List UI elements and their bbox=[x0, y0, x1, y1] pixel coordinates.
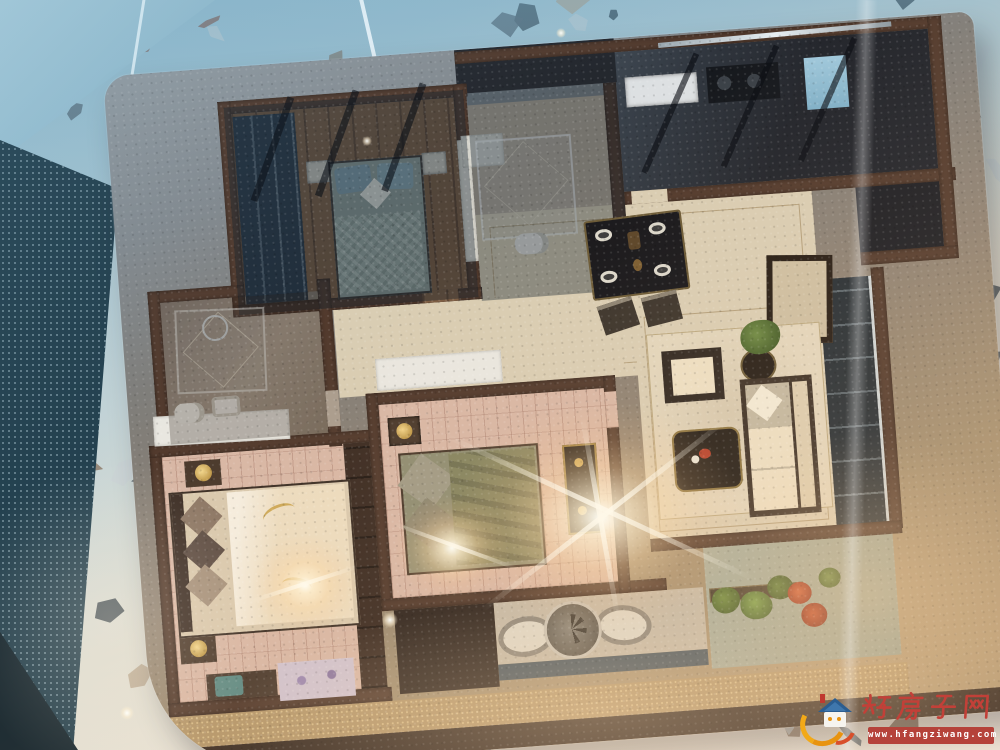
palm-shadow bbox=[556, 613, 588, 645]
armchair-cushion bbox=[671, 357, 716, 396]
site-url-banner: www.hfangziwang.com bbox=[868, 727, 994, 744]
plate bbox=[648, 221, 666, 235]
rug-master bbox=[277, 658, 356, 702]
gold-knob bbox=[578, 506, 588, 516]
flower-red bbox=[699, 448, 712, 459]
site-name-calligraphy bbox=[862, 690, 994, 724]
dining-table bbox=[583, 209, 690, 301]
gold-knob bbox=[574, 458, 584, 468]
pillow bbox=[403, 497, 458, 552]
nightstand bbox=[387, 416, 421, 446]
glass-tint bbox=[224, 90, 479, 315]
glass-tint bbox=[160, 291, 328, 444]
door-gap bbox=[631, 189, 668, 205]
burner bbox=[717, 76, 732, 91]
plate bbox=[594, 228, 612, 242]
blanket bbox=[448, 447, 542, 565]
plate bbox=[653, 263, 671, 277]
bed-master bbox=[168, 479, 360, 638]
plate bbox=[600, 270, 618, 284]
house-body-icon bbox=[824, 712, 846, 727]
nightstand bbox=[184, 459, 222, 488]
nightstand bbox=[179, 636, 217, 665]
house-roof-icon bbox=[824, 702, 846, 711]
bench bbox=[206, 669, 278, 700]
showroom-photo: 好房子网 www.hfangziwang.com bbox=[0, 0, 1000, 750]
dresser bbox=[562, 443, 603, 535]
gold-lamp bbox=[190, 640, 208, 658]
centerpiece bbox=[632, 259, 642, 272]
laundry-nook bbox=[394, 603, 500, 694]
terrazzo-chip bbox=[90, 593, 127, 627]
gold-lamp bbox=[194, 464, 212, 482]
flower-white bbox=[691, 455, 700, 464]
window-dot-icon bbox=[837, 717, 841, 721]
coffee-table bbox=[671, 426, 743, 493]
bed-center bbox=[398, 443, 547, 575]
teal-cushion bbox=[214, 675, 243, 697]
window-dot-icon bbox=[828, 717, 832, 721]
sofa bbox=[740, 374, 822, 517]
gold-lamp bbox=[396, 422, 413, 439]
door-gap bbox=[604, 391, 619, 428]
site-url: www.hfangziwang.com bbox=[868, 730, 998, 740]
centerpiece bbox=[627, 231, 641, 250]
watermark: 好房子网 www.hfangziwang.com bbox=[796, 690, 998, 748]
pillow-diamond bbox=[185, 564, 227, 606]
armchair bbox=[661, 347, 725, 403]
